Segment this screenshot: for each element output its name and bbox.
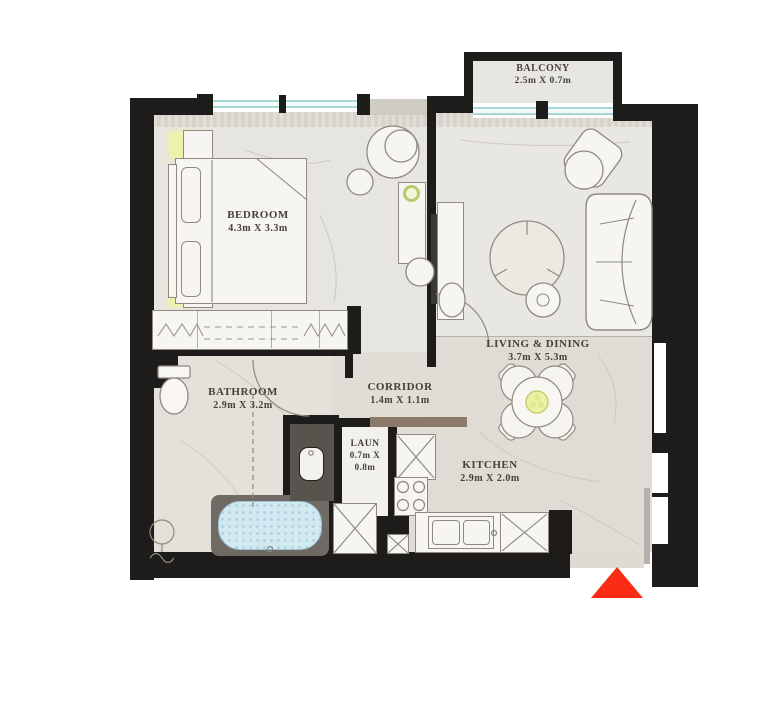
room-dims: 4.3m X 3.3m xyxy=(227,222,289,235)
room-name: BEDROOM xyxy=(227,208,289,222)
kitchen-label: KITCHEN 2.9m X 2.0m xyxy=(460,458,519,485)
room-dims: 2.9m X 3.2m xyxy=(208,399,278,412)
bathroom-label: BATHROOM 2.9m X 3.2m xyxy=(208,385,278,412)
bedroom-stool-icon xyxy=(347,169,373,195)
room-dims: 1.4m X 1.1m xyxy=(367,394,432,407)
floor-drain-icon xyxy=(150,520,174,563)
room-dims: 2.9m X 2.0m xyxy=(460,472,519,485)
laundry-label: LAUN 0.7m X 0.8m xyxy=(350,438,381,474)
ottoman-icon xyxy=(439,283,465,317)
room-dims-line2: 0.8m xyxy=(350,462,381,474)
room-name: LIVING & DINING xyxy=(486,337,589,351)
room-name: KITCHEN xyxy=(460,458,519,472)
balcony-label: BALCONY 2.5m X 0.7m xyxy=(515,62,572,87)
bedroom-label: BEDROOM 4.3m X 3.3m xyxy=(227,208,289,235)
corridor-label: CORRIDOR 1.4m X 1.1m xyxy=(367,380,432,407)
plan-detail-overlay xyxy=(0,0,766,702)
room-name: BALCONY xyxy=(515,62,572,75)
room-name: BATHROOM xyxy=(208,385,278,399)
floor-plan: BALCONY 2.5m X 0.7m BEDROOM 4.3m X 3.3m … xyxy=(0,0,766,702)
sofa-icon xyxy=(586,194,652,330)
toilet-icon xyxy=(158,366,190,414)
room-dims: 3.7m X 5.3m xyxy=(486,351,589,364)
desk-stool-icon xyxy=(406,258,434,286)
room-dims: 2.5m X 0.7m xyxy=(515,75,572,87)
entrance-arrow-icon xyxy=(591,567,643,598)
side-table-icon xyxy=(526,283,560,317)
room-dims-line1: 0.7m X xyxy=(350,450,381,462)
dining-table-icon xyxy=(497,362,577,442)
room-name: CORRIDOR xyxy=(367,380,432,394)
room-name: LAUN xyxy=(350,438,381,450)
living-dining-label: LIVING & DINING 3.7m X 5.3m xyxy=(486,337,589,364)
